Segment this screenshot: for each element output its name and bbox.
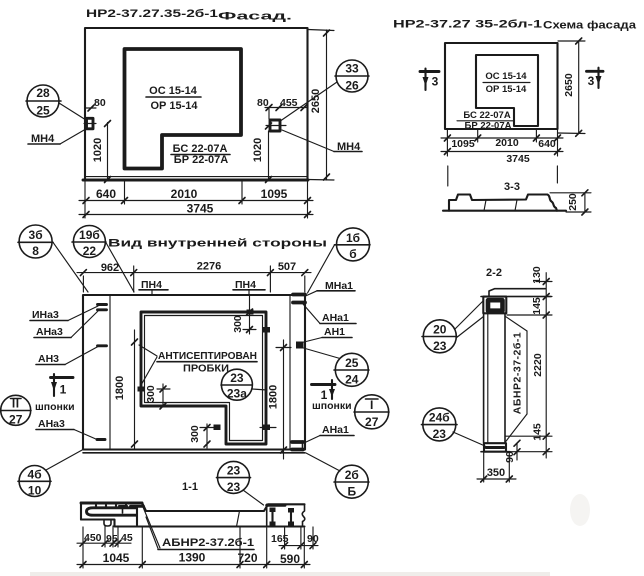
- svg-text:1б: 1б: [346, 231, 360, 245]
- svg-text:ОС 15-14: ОС 15-14: [485, 71, 527, 82]
- svg-text:300: 300: [145, 385, 157, 403]
- svg-text:I: I: [370, 398, 373, 412]
- svg-text:1800: 1800: [114, 376, 126, 400]
- svg-text:АНа1: АНа1: [322, 312, 349, 324]
- svg-text:ОР 15-14: ОР 15-14: [486, 84, 527, 95]
- svg-text:130: 130: [531, 266, 543, 284]
- svg-text:АНа3: АНа3: [36, 326, 63, 338]
- svg-text:шпонки: шпонки: [312, 400, 352, 412]
- svg-text:27: 27: [9, 413, 23, 427]
- svg-text:3745: 3745: [506, 153, 530, 165]
- svg-text:507: 507: [278, 261, 296, 273]
- svg-text:300: 300: [232, 315, 244, 333]
- svg-text:2010: 2010: [171, 187, 198, 201]
- svg-text:640: 640: [96, 187, 116, 201]
- svg-text:3-3: 3-3: [504, 181, 520, 193]
- svg-text:8: 8: [32, 244, 39, 258]
- svg-text:250: 250: [567, 193, 579, 211]
- svg-text:АНТИСЕПТИРОВАН: АНТИСЕПТИРОВАН: [158, 350, 257, 362]
- svg-text:ОС 15-14: ОС 15-14: [149, 85, 198, 97]
- svg-text:1020: 1020: [252, 138, 264, 162]
- svg-text:3745: 3745: [187, 202, 214, 216]
- svg-text:шпонки: шпонки: [35, 401, 75, 413]
- svg-text:3: 3: [432, 75, 439, 89]
- svg-text:Вид внутренней стороны: Вид внутренней стороны: [108, 238, 327, 250]
- svg-text:Б: Б: [347, 485, 356, 499]
- svg-text:23: 23: [433, 427, 447, 441]
- svg-text:25: 25: [36, 104, 50, 118]
- svg-text:Схема фасада: Схема фасада: [543, 20, 637, 32]
- svg-text:33: 33: [345, 62, 359, 76]
- svg-text:90: 90: [307, 533, 319, 545]
- svg-text:22: 22: [83, 244, 97, 258]
- svg-text:2010: 2010: [495, 137, 519, 149]
- svg-text:НР2-37.27.35-2б-1: НР2-37.27.35-2б-1: [86, 8, 218, 20]
- svg-text:720: 720: [237, 551, 257, 565]
- svg-text:1800: 1800: [268, 385, 280, 409]
- svg-text:90: 90: [504, 451, 516, 463]
- svg-text:ОР 15-14: ОР 15-14: [150, 100, 198, 112]
- svg-text:10: 10: [28, 484, 42, 498]
- svg-text:23а: 23а: [227, 387, 247, 401]
- svg-text:450: 450: [84, 532, 102, 544]
- svg-text:27: 27: [365, 415, 379, 429]
- svg-text:АН1: АН1: [324, 326, 345, 338]
- svg-text:23: 23: [230, 371, 244, 385]
- svg-text:АБНР2-37-2б-1: АБНР2-37-2б-1: [512, 332, 524, 414]
- svg-text:95: 95: [106, 533, 118, 545]
- svg-text:350: 350: [487, 467, 505, 479]
- svg-text:АНа1: АНа1: [322, 424, 349, 436]
- svg-text:23: 23: [227, 480, 241, 494]
- svg-text:Фасад.: Фасад.: [218, 11, 292, 23]
- svg-text:165: 165: [271, 533, 289, 545]
- svg-text:20: 20: [433, 323, 447, 337]
- svg-text:145: 145: [531, 297, 543, 315]
- svg-text:25: 25: [345, 356, 359, 370]
- svg-text:590: 590: [280, 552, 300, 566]
- svg-text:1045: 1045: [103, 551, 130, 565]
- svg-text:ПРОБКИ: ПРОБКИ: [183, 363, 229, 375]
- svg-text:3б: 3б: [29, 228, 43, 242]
- svg-text:АН3: АН3: [38, 353, 59, 365]
- svg-text:28: 28: [36, 86, 50, 100]
- svg-text:2-2: 2-2: [486, 267, 502, 279]
- svg-text:1390: 1390: [179, 551, 206, 565]
- svg-text:БР 22-07А: БР 22-07А: [174, 154, 228, 166]
- svg-text:26: 26: [345, 79, 359, 93]
- svg-text:БС 22-07А: БС 22-07А: [463, 110, 511, 121]
- svg-text:45: 45: [121, 532, 133, 544]
- svg-text:БР 22-07А: БР 22-07А: [465, 121, 512, 132]
- svg-text:ИНа3: ИНа3: [32, 309, 59, 321]
- svg-text:962: 962: [101, 262, 119, 274]
- svg-text:АНа3: АНа3: [38, 418, 65, 430]
- svg-text:4б: 4б: [28, 468, 42, 482]
- svg-text:640: 640: [538, 138, 556, 150]
- svg-text:300: 300: [189, 425, 201, 443]
- svg-text:2220: 2220: [532, 353, 544, 377]
- svg-text:23: 23: [433, 339, 447, 353]
- svg-text:б: б: [349, 247, 356, 261]
- svg-text:1095: 1095: [261, 187, 288, 201]
- svg-text:НР2-37.27 35-2бл-1: НР2-37.27 35-2бл-1: [393, 19, 542, 31]
- svg-text:3: 3: [588, 74, 595, 88]
- svg-text:19б: 19б: [79, 228, 100, 242]
- svg-text:2650: 2650: [310, 89, 322, 113]
- svg-text:24б: 24б: [429, 411, 450, 425]
- svg-text:23: 23: [227, 464, 241, 478]
- svg-text:2276: 2276: [197, 261, 221, 273]
- svg-text:145: 145: [532, 423, 544, 441]
- svg-text:1020: 1020: [92, 138, 104, 162]
- svg-text:1-1: 1-1: [182, 481, 198, 493]
- svg-text:2б: 2б: [345, 468, 359, 482]
- svg-text:1095: 1095: [451, 138, 475, 150]
- svg-text:1: 1: [60, 383, 67, 397]
- svg-text:2650: 2650: [563, 73, 575, 97]
- svg-text:24: 24: [345, 373, 359, 387]
- svg-text:80: 80: [94, 97, 106, 109]
